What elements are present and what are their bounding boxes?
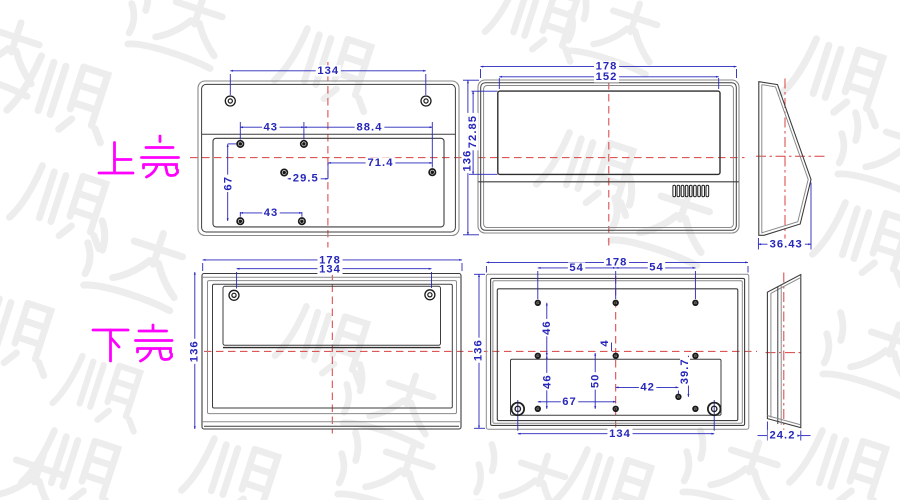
svg-text:88.4: 88.4 xyxy=(357,121,383,133)
svg-text:67: 67 xyxy=(222,176,234,191)
svg-text:39.7: 39.7 xyxy=(679,358,691,384)
svg-text:50: 50 xyxy=(590,374,602,389)
svg-text:43: 43 xyxy=(264,207,279,219)
svg-text:136: 136 xyxy=(472,339,484,361)
svg-text:72.85: 72.85 xyxy=(467,115,479,148)
svg-text:152: 152 xyxy=(596,71,618,83)
svg-text:24.2: 24.2 xyxy=(770,429,796,441)
svg-text:29.5: 29.5 xyxy=(293,172,319,184)
svg-text:46: 46 xyxy=(541,374,553,389)
svg-text:4: 4 xyxy=(599,339,611,346)
svg-text:36.43: 36.43 xyxy=(770,238,803,250)
svg-text:178: 178 xyxy=(606,256,628,268)
svg-text:136: 136 xyxy=(188,340,200,362)
svg-text:54: 54 xyxy=(649,262,664,274)
svg-text:54: 54 xyxy=(569,262,584,274)
svg-text:42: 42 xyxy=(640,381,655,393)
svg-text:71.4: 71.4 xyxy=(368,157,394,169)
svg-text:136: 136 xyxy=(462,150,474,172)
svg-text:134: 134 xyxy=(609,428,631,440)
svg-text:46: 46 xyxy=(541,320,553,335)
svg-text:134: 134 xyxy=(317,65,339,77)
svg-text:43: 43 xyxy=(264,121,279,133)
svg-text:67: 67 xyxy=(562,396,577,408)
svg-text:134: 134 xyxy=(319,263,341,275)
